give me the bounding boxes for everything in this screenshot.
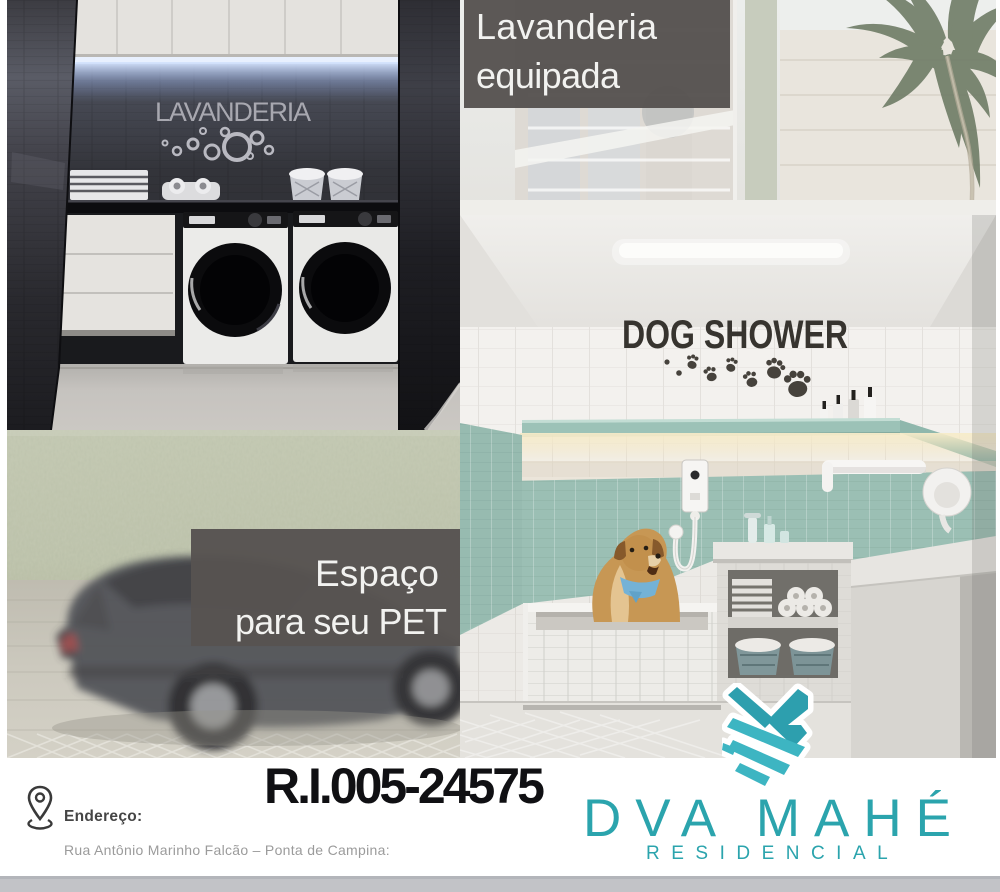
svg-text:Lavanderia: Lavanderia xyxy=(476,6,658,47)
svg-text:Espaço: Espaço xyxy=(315,553,439,594)
svg-text:DOG SHOWER: DOG SHOWER xyxy=(622,313,848,357)
svg-text:equipada: equipada xyxy=(476,55,621,96)
svg-text:LAVANDERIA: LAVANDERIA xyxy=(155,97,312,127)
svg-text:para seu PET: para seu PET xyxy=(235,601,447,642)
